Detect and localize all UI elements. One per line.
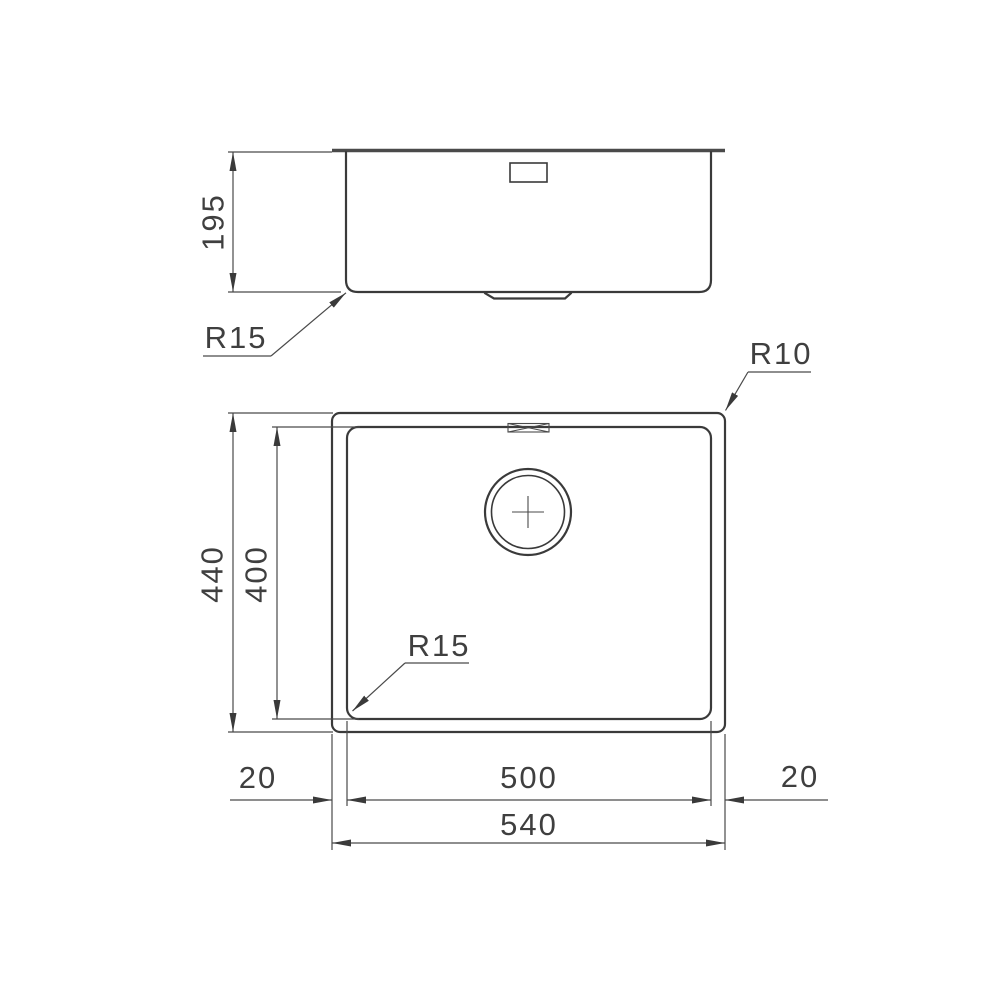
bowl-radius-leader-line xyxy=(353,663,406,711)
side-radius-leader-line xyxy=(271,293,346,356)
drain xyxy=(485,469,571,555)
outer-width-dim-label: 540 xyxy=(500,807,558,842)
bowl-radius-callout-label: R15 xyxy=(408,628,471,663)
depth-dim-label: 195 xyxy=(196,193,231,251)
rim-left-dim-label: 20 xyxy=(239,760,277,795)
bowl-height-dim-label: 400 xyxy=(239,545,274,603)
drain-boss-profile xyxy=(485,293,571,298)
bowl-width-dim-label: 500 xyxy=(500,760,558,795)
outer-radius-leader-line xyxy=(726,372,749,411)
side-view: 195 R15 xyxy=(196,151,726,357)
overflow-outline xyxy=(510,163,547,182)
drain-center-cross xyxy=(512,496,544,528)
bowl-profile xyxy=(346,152,711,292)
sink-technical-drawing: 195 R15 R10 xyxy=(0,0,1000,1000)
rim-right-dim-label: 20 xyxy=(781,759,819,794)
plan-view: R10 R15 440 400 20 xyxy=(195,336,829,850)
outer-radius-callout-label: R10 xyxy=(750,336,813,371)
side-radius-callout-label: R15 xyxy=(205,320,268,355)
bowl-rect xyxy=(347,427,711,719)
outer-rim-rect xyxy=(332,413,725,732)
drawing-canvas: 195 R15 R10 xyxy=(0,0,1000,1000)
outer-height-dim-label: 440 xyxy=(195,545,230,603)
